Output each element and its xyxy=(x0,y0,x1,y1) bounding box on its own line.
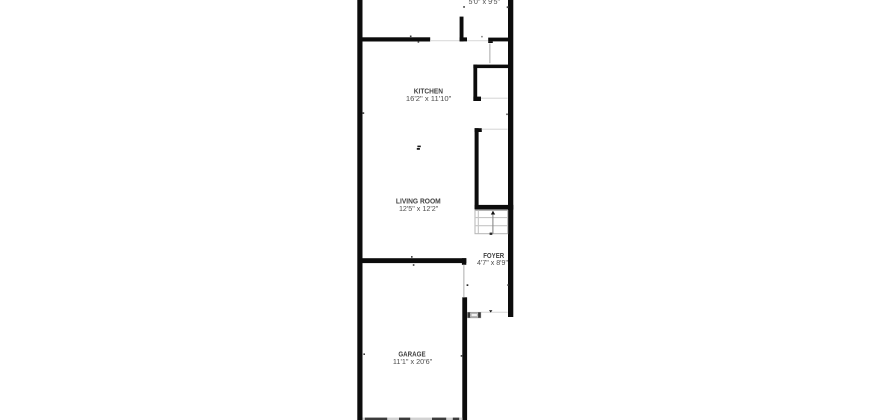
svg-text:16'2" x 11'10": 16'2" x 11'10" xyxy=(406,94,452,103)
svg-text:12'5" x 12'2": 12'5" x 12'2" xyxy=(399,204,439,213)
svg-text:5'0" x 9'5": 5'0" x 9'5" xyxy=(469,0,501,6)
svg-text:4'7" x 8'9": 4'7" x 8'9" xyxy=(477,258,508,267)
svg-text:11'1" x 20'6": 11'1" x 20'6" xyxy=(393,357,433,366)
